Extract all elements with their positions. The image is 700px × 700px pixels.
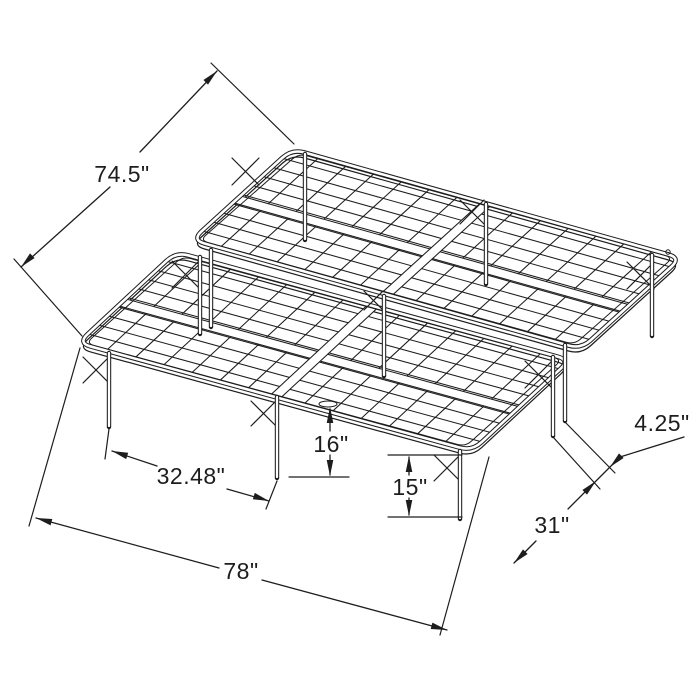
dimension-label-leg-height-front: 15" [392, 474, 427, 500]
frame-half [83, 254, 564, 454]
dimension-label-leg-span-right: 31" [534, 512, 569, 538]
diagram-canvas: 74.5" 78" 32.48" 16" 15" 31" 4.25" [0, 0, 700, 700]
dimension-label-leg-span-left: 32.48" [157, 463, 226, 489]
dimension-label-length-front: 78" [223, 558, 258, 584]
dimension-label-clearance-center: 16" [313, 431, 348, 457]
dimension-label-width-top: 74.5" [94, 161, 149, 187]
dimension-annotations [14, 63, 684, 635]
dimension-label-seam-leg-gap: 4.25" [634, 410, 689, 436]
bed-frame-dimension-diagram: 74.5" 78" 32.48" 16" 15" 31" 4.25" [0, 0, 700, 700]
